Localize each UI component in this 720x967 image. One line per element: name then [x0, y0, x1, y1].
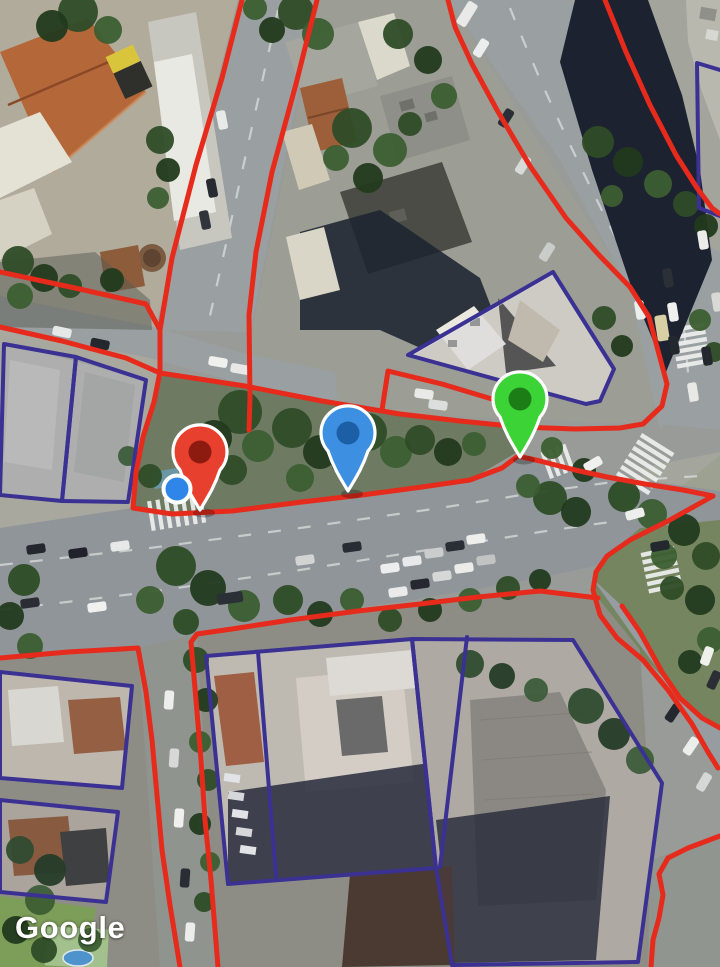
google-maps-logo[interactable]: Google [15, 910, 125, 946]
map-viewport[interactable]: Google [0, 0, 720, 967]
satellite-map[interactable] [0, 0, 720, 967]
location-dot [164, 476, 191, 503]
